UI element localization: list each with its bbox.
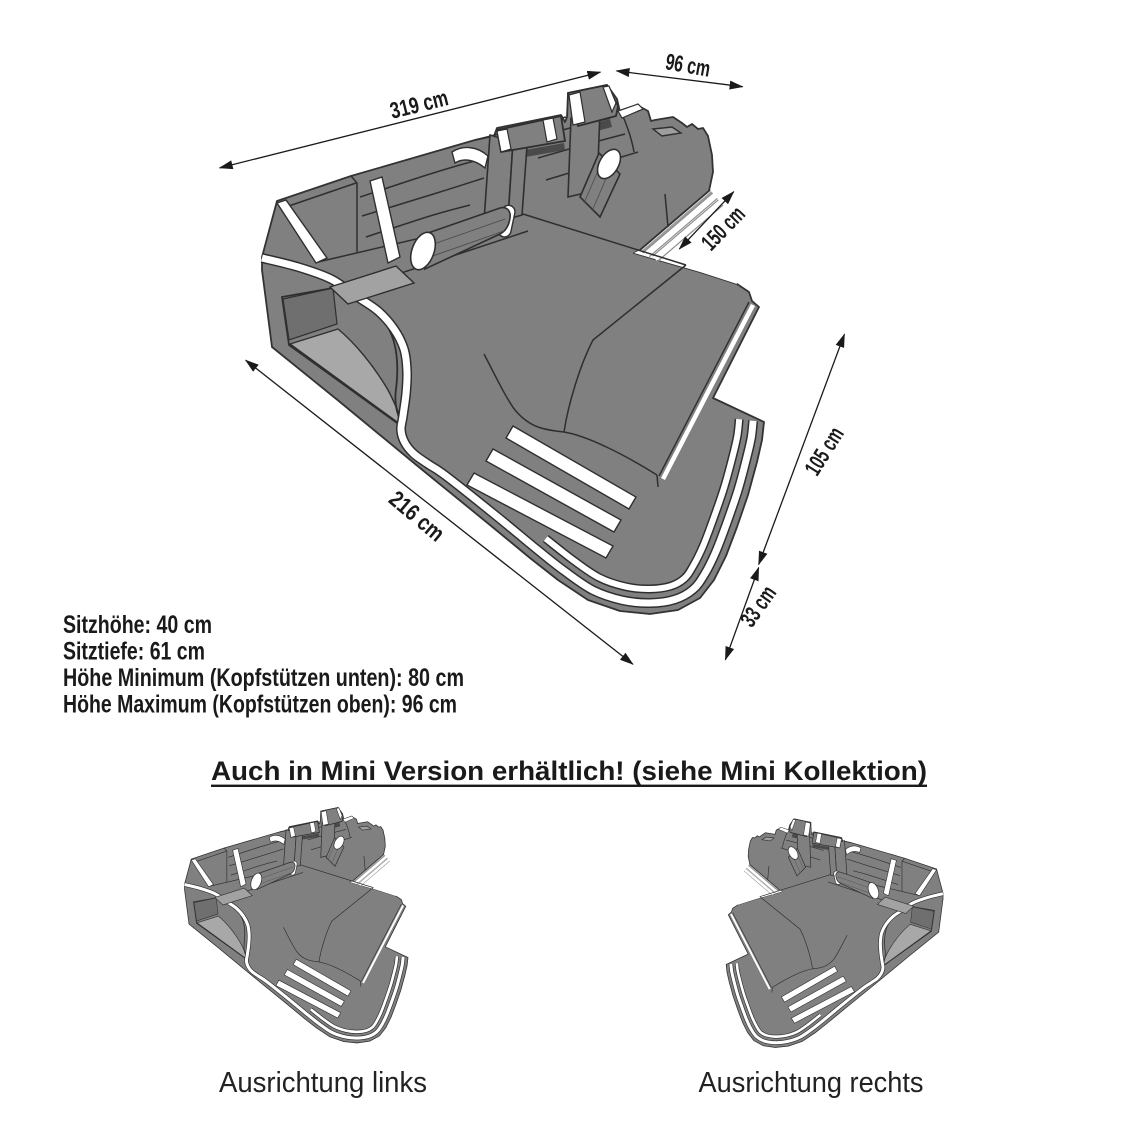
svg-text:105 cm: 105 cm — [799, 422, 849, 480]
svg-text:Ausrichtung rechts: Ausrichtung rechts — [699, 1067, 924, 1099]
svg-text:Höhe Minimum (Kopfstützen unte: Höhe Minimum (Kopfstützen unten): 80 cm — [63, 664, 464, 692]
svg-text:96 cm: 96 cm — [664, 48, 713, 81]
svg-text:33 cm: 33 cm — [735, 581, 782, 632]
svg-text:Höhe Maximum (Kopfstützen oben: Höhe Maximum (Kopfstützen oben): 96 cm — [63, 691, 457, 719]
svg-text:Sitztiefe: 61 cm: Sitztiefe: 61 cm — [63, 638, 205, 666]
svg-text:Ausrichtung links: Ausrichtung links — [219, 1067, 427, 1099]
svg-text:Sitzhöhe: 40 cm: Sitzhöhe: 40 cm — [63, 611, 212, 639]
svg-text:Auch in Mini Version erhältlic: Auch in Mini Version erhältlich! (siehe … — [211, 756, 927, 786]
